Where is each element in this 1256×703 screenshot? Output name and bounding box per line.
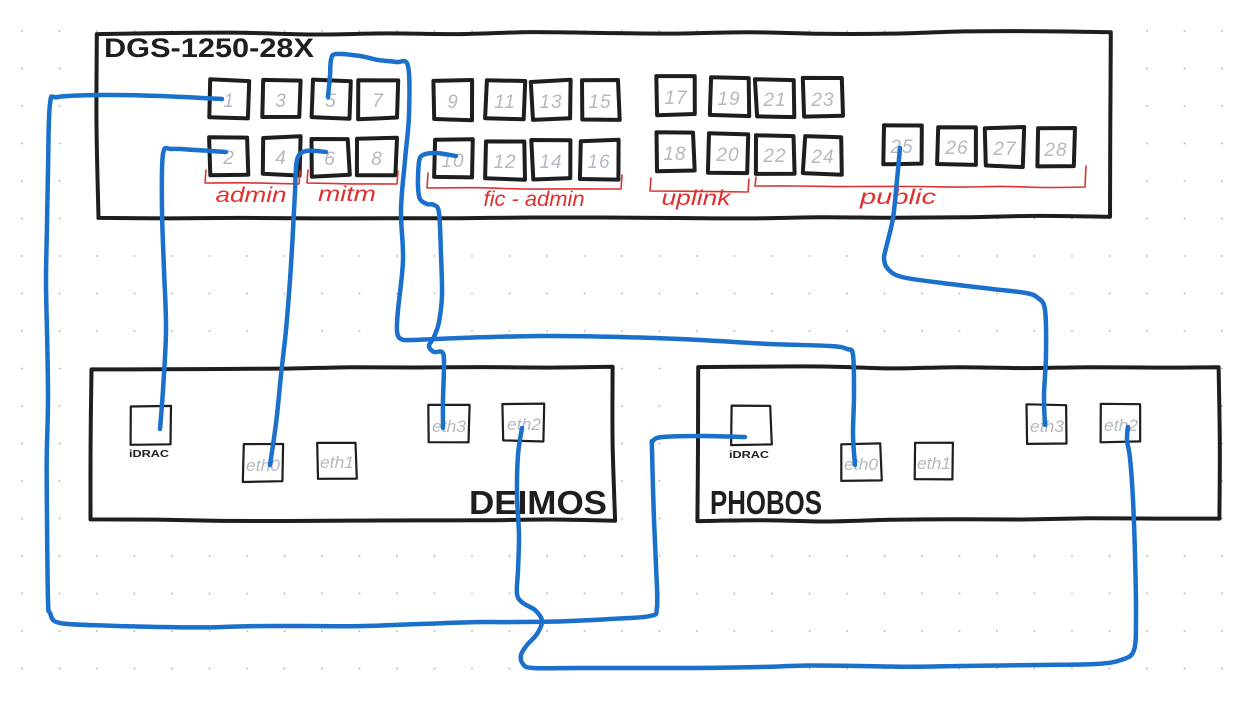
svg-text:20: 20 <box>715 145 739 166</box>
svg-text:1: 1 <box>223 91 235 112</box>
svg-text:13: 13 <box>539 92 562 113</box>
svg-text:17: 17 <box>664 88 688 109</box>
svg-text:uplink: uplink <box>662 187 733 210</box>
svg-text:28: 28 <box>1043 140 1067 161</box>
svg-text:eth1: eth1 <box>917 454 951 473</box>
svg-text:mitm: mitm <box>318 183 376 206</box>
svg-text:19: 19 <box>717 89 740 110</box>
svg-text:eth0: eth0 <box>844 455 879 474</box>
svg-text:DEIMOS: DEIMOS <box>469 484 607 521</box>
svg-text:PHOBOS: PHOBOS <box>710 484 822 521</box>
svg-text:admin: admin <box>216 184 287 207</box>
svg-text:16: 16 <box>587 152 610 173</box>
svg-text:21: 21 <box>762 90 786 111</box>
svg-text:3: 3 <box>275 91 287 112</box>
svg-text:18: 18 <box>663 144 686 165</box>
svg-text:9: 9 <box>447 92 459 113</box>
svg-text:27: 27 <box>992 139 1017 160</box>
svg-text:4: 4 <box>275 148 287 169</box>
svg-text:11: 11 <box>494 92 516 113</box>
svg-text:eth3: eth3 <box>1030 417 1065 436</box>
svg-text:eth0: eth0 <box>246 456 281 475</box>
svg-text:12: 12 <box>493 152 516 173</box>
svg-text:iDRAC: iDRAC <box>729 449 769 461</box>
svg-text:eth2: eth2 <box>1104 416 1139 435</box>
svg-text:eth3: eth3 <box>432 417 467 436</box>
svg-text:15: 15 <box>588 92 611 113</box>
svg-text:23: 23 <box>810 90 834 111</box>
svg-text:14: 14 <box>539 152 562 173</box>
svg-text:7: 7 <box>372 91 384 112</box>
svg-text:22: 22 <box>762 146 786 167</box>
svg-text:iDRAC: iDRAC <box>129 448 169 460</box>
svg-text:26: 26 <box>944 138 968 159</box>
svg-text:fic - admin: fic - admin <box>484 188 585 211</box>
svg-text:8: 8 <box>371 149 383 170</box>
svg-text:DGS-1250-28X: DGS-1250-28X <box>104 33 314 63</box>
svg-text:eth2: eth2 <box>507 415 542 434</box>
svg-text:eth1: eth1 <box>320 453 354 472</box>
svg-text:24: 24 <box>810 147 834 168</box>
